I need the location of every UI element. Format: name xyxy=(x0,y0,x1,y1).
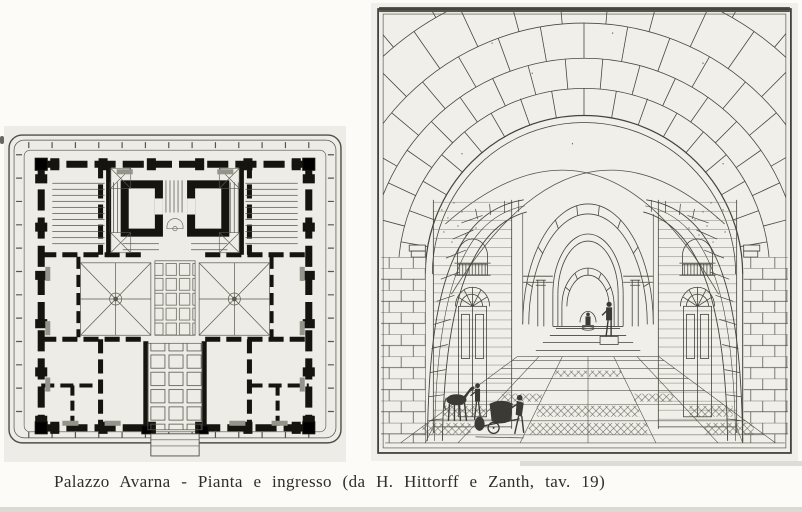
plan-entrance-porch xyxy=(151,434,199,456)
figure-caption: Palazzo Avarna - Pianta e ingresso (da H… xyxy=(54,471,605,492)
page-bottom-edge xyxy=(0,507,802,512)
floor-plan-drawing xyxy=(4,126,346,462)
scan-edge-strip xyxy=(520,461,802,466)
entrance-perspective-drawing xyxy=(371,3,798,461)
ink-speck xyxy=(0,136,4,144)
plan-cortile-atrium xyxy=(148,261,202,430)
scanned-book-page: Palazzo Avarna - Pianta e ingresso (da H… xyxy=(0,0,802,512)
floor-plan-figure xyxy=(4,126,346,462)
niche-statue xyxy=(586,313,591,326)
entrance-perspective-figure xyxy=(371,3,798,461)
